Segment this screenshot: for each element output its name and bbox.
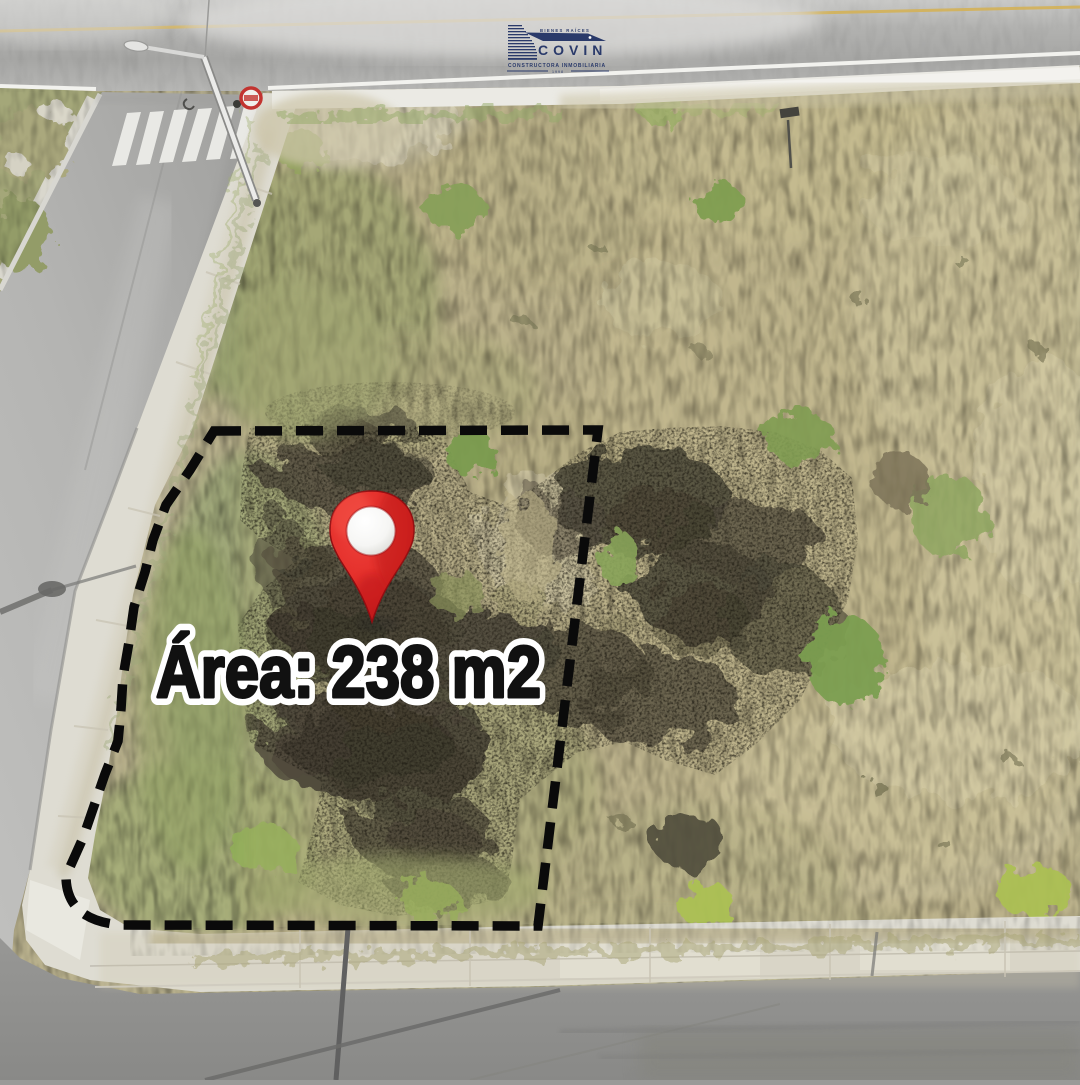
svg-text:COVIN: COVIN <box>538 42 607 58</box>
svg-text:CONSTRUCTORA INMOBILIARIA: CONSTRUCTORA INMOBILIARIA <box>508 63 606 69</box>
svg-text:BIENES RAÍCES: BIENES RAÍCES <box>540 28 590 33</box>
svg-text:Área: 238 m2: Área: 238 m2 <box>156 632 541 713</box>
svg-text:1998: 1998 <box>552 70 564 74</box>
